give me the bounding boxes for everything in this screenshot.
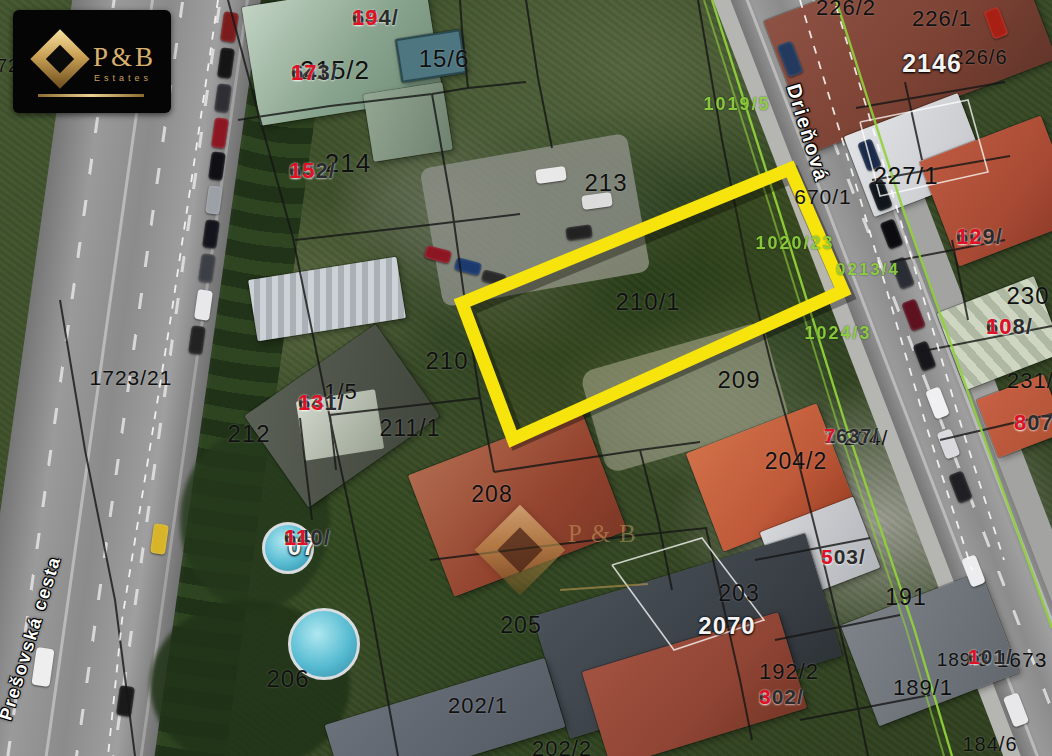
- parcel-label: 210: [425, 349, 468, 373]
- parcel-label: 202/2: [532, 738, 592, 756]
- cadastral-green-label: 1019/5: [703, 95, 770, 113]
- parcel-label: 227/1: [873, 164, 938, 188]
- parcel-label: 1673: [997, 649, 1048, 670]
- parcel-label: 189/1: [893, 677, 953, 699]
- cadastral-green-label: 0213/4: [836, 261, 900, 278]
- parcel-label: 213: [584, 171, 627, 195]
- parcel-label: 192/2: [759, 661, 819, 683]
- brand-logo: P&B Estates: [13, 10, 171, 113]
- parcel-label: 205: [500, 614, 541, 637]
- parcel-label: 214: [325, 150, 371, 176]
- parcel-label: 1723/21: [90, 367, 173, 388]
- brand-underline: [38, 94, 144, 97]
- cadastral-green-label: 1024/3: [804, 324, 871, 342]
- parcel-label: 202/1: [448, 695, 508, 717]
- parcel-label: 189/3: [937, 650, 990, 669]
- parcel-label: 208: [471, 483, 512, 506]
- label-layer: 215/215/6214213210/1210209212211/11/5208…: [0, 0, 1052, 756]
- parcel-label: 209: [717, 368, 760, 392]
- parcel-label: 226/1: [912, 8, 972, 30]
- parcel-label: 212: [227, 422, 270, 446]
- diamond-logo-icon: [30, 29, 89, 88]
- parcel-label: 231/7: [1007, 370, 1052, 392]
- street-name: Prešovská cesta: [0, 554, 64, 723]
- parcel-label: 184/6: [962, 734, 1017, 754]
- parcel-label: 2070: [698, 614, 755, 638]
- parcel-label: 226/2: [816, 0, 876, 19]
- parcel-label: 203: [718, 582, 759, 605]
- parcel-label: 191: [885, 586, 926, 609]
- parcel-label: 210/1: [615, 290, 680, 314]
- parcel-label: 211/1: [380, 417, 441, 440]
- parcel-label: 670/1: [794, 186, 852, 207]
- parcel-label: 07: [288, 535, 317, 559]
- cadastral-green-label: 1020/23: [755, 234, 834, 252]
- parcel-label: 204/: [844, 427, 889, 448]
- parcel-label: 206: [266, 667, 309, 691]
- map-canvas[interactable]: 215/215/6214213210/1210209212211/11/5208…: [0, 0, 1052, 756]
- parcel-label: 215/2: [300, 57, 370, 83]
- street-name: Drieňová: [784, 81, 833, 184]
- brand-name: P&B: [93, 42, 156, 73]
- parcel-label: 230: [1006, 284, 1049, 308]
- parcel-label: 204/2: [765, 450, 828, 473]
- parcel-label: 2146: [902, 51, 962, 76]
- brand-subtitle: Estates: [94, 73, 152, 83]
- parcel-label: 1/5: [324, 381, 358, 403]
- parcel-label: 15/6: [419, 47, 470, 71]
- parcel-label: 226/6: [952, 47, 1007, 67]
